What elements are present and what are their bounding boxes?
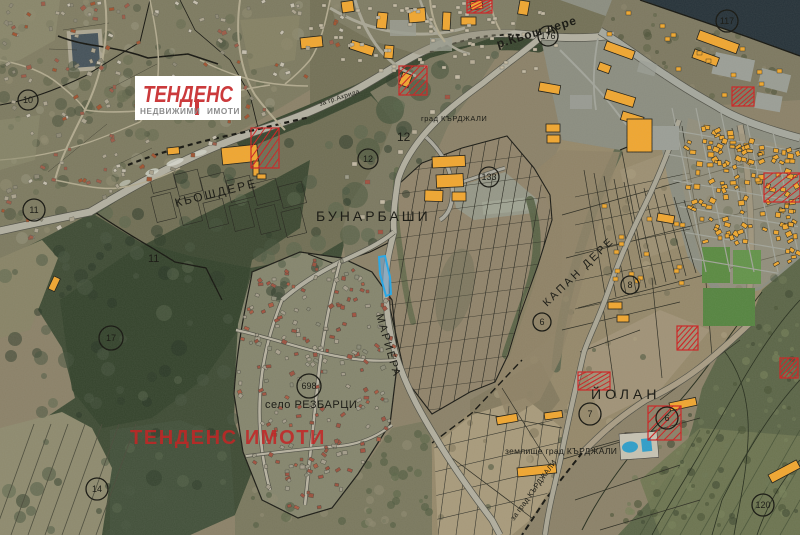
svg-text:ТЕНДЕНС: ТЕНДЕНС [143, 81, 233, 107]
svg-text:ТЕНДЕНС ИМОТИ: ТЕНДЕНС ИМОТИ [130, 427, 326, 449]
svg-text:ИМОТИ: ИМОТИ [207, 107, 240, 116]
svg-text:НЕДВИЖИМИ: НЕДВИЖИМИ [140, 107, 200, 116]
